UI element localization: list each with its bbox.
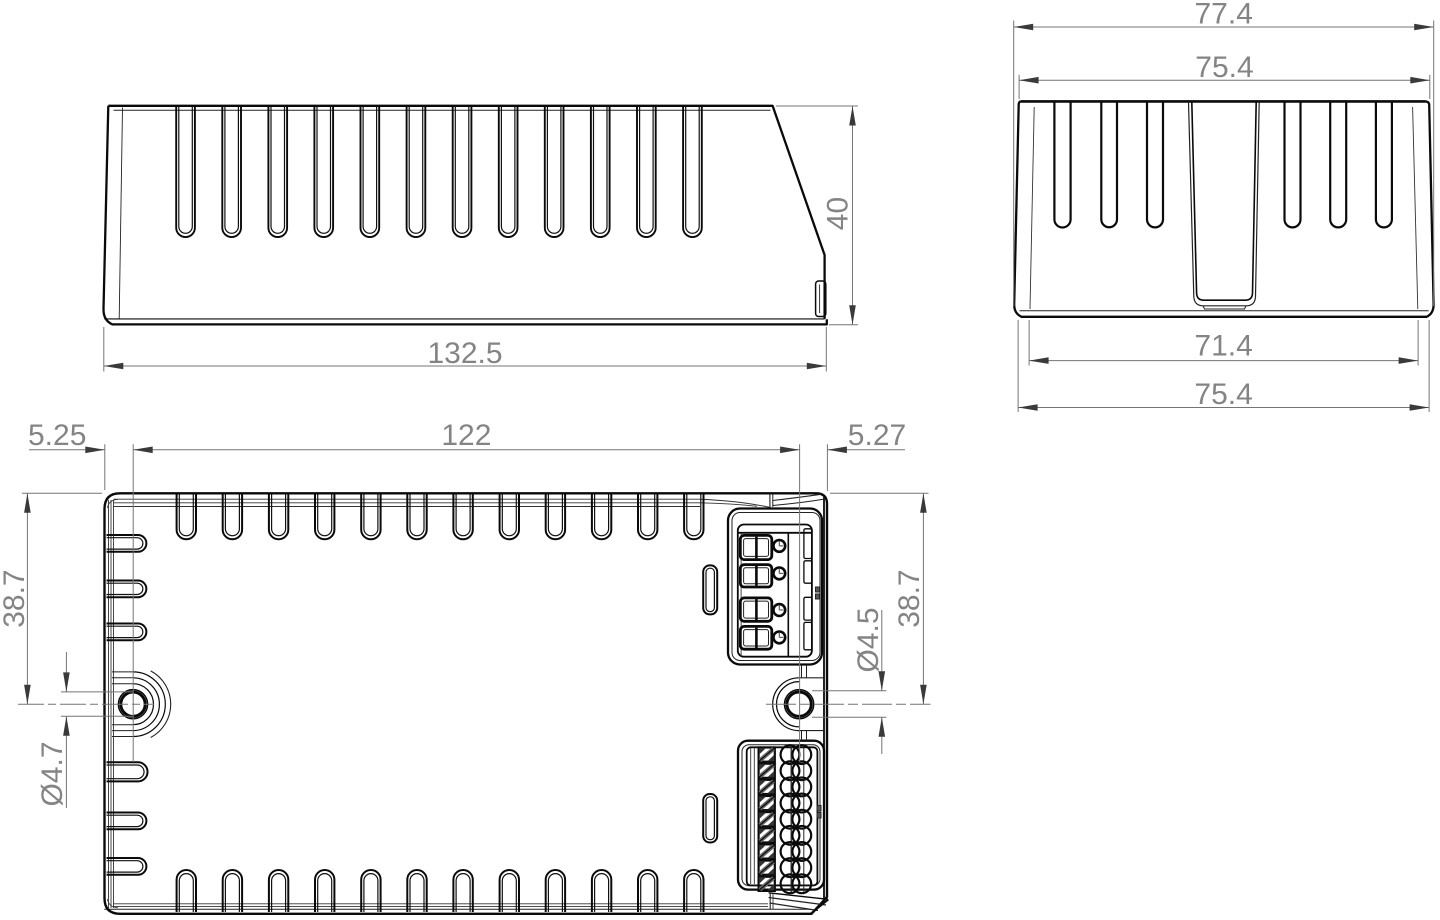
svg-text:40: 40 (822, 197, 855, 230)
svg-text:77.4: 77.4 (1195, 0, 1253, 31)
svg-text:Ø4.5: Ø4.5 (852, 607, 885, 672)
svg-text:5.27: 5.27 (848, 419, 906, 452)
svg-text:38.7: 38.7 (0, 569, 31, 627)
svg-text:132.5: 132.5 (427, 337, 502, 370)
svg-text:5.25: 5.25 (28, 419, 86, 452)
svg-text:75.4: 75.4 (1194, 378, 1252, 411)
svg-text:Ø4.7: Ø4.7 (36, 741, 69, 806)
svg-text:71.4: 71.4 (1194, 330, 1252, 363)
svg-text:122: 122 (441, 419, 491, 452)
svg-text:38.7: 38.7 (893, 569, 926, 627)
svg-text:75.4: 75.4 (1195, 51, 1253, 84)
